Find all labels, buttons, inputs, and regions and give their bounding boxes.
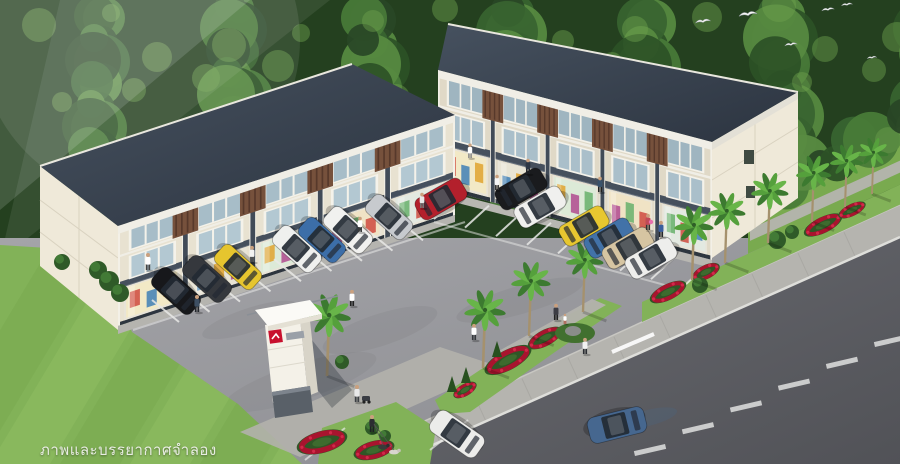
facade-detail xyxy=(360,181,362,202)
tree-canopy-highlight xyxy=(362,10,384,32)
facade-detail xyxy=(414,133,416,155)
person-legs xyxy=(197,306,199,312)
facade-detail xyxy=(525,99,527,125)
person-torso xyxy=(554,308,559,315)
facade-detail xyxy=(655,162,659,246)
facade-detail xyxy=(525,134,527,159)
stroller-wheel xyxy=(362,400,365,403)
facade-detail xyxy=(580,114,582,140)
facade-detail xyxy=(461,165,469,186)
person-legs xyxy=(659,231,661,237)
bush-highlight xyxy=(90,262,100,272)
person-legs xyxy=(565,320,566,324)
person-legs xyxy=(360,227,362,232)
palm-crown xyxy=(692,223,696,227)
person-legs xyxy=(350,300,352,306)
facade-detail xyxy=(118,225,120,326)
person-head xyxy=(358,217,362,221)
person-shadow xyxy=(250,262,258,264)
person-legs xyxy=(357,396,359,402)
person-legs xyxy=(583,348,585,354)
person-shadow xyxy=(583,354,591,356)
facade-detail xyxy=(624,160,626,185)
person-legs xyxy=(648,224,650,230)
person-torso xyxy=(354,389,359,397)
person-head xyxy=(659,221,663,225)
person-torso xyxy=(468,147,472,153)
facade-detail xyxy=(514,97,516,123)
facade-detail xyxy=(470,120,472,145)
bush-highlight xyxy=(112,285,122,295)
facade-detail xyxy=(679,175,681,200)
person-head xyxy=(350,290,354,294)
person-shadow xyxy=(358,232,365,234)
person-head xyxy=(554,304,558,308)
bush-highlight xyxy=(101,272,112,283)
person-legs xyxy=(646,224,648,230)
facade-detail xyxy=(293,203,295,224)
facade-detail xyxy=(580,149,582,174)
person-legs xyxy=(497,185,499,190)
facade-detail xyxy=(690,143,692,169)
bush-highlight xyxy=(786,226,794,234)
person-legs xyxy=(470,153,472,158)
tree-canopy-highlight xyxy=(812,36,838,62)
person-legs xyxy=(355,396,357,402)
person-legs xyxy=(556,314,558,320)
facade-detail xyxy=(427,158,429,179)
person-torso xyxy=(194,299,199,307)
person-shadow xyxy=(468,158,475,160)
facade-detail xyxy=(360,151,362,173)
person-head xyxy=(472,324,476,328)
person-torso xyxy=(358,220,363,227)
facade-detail xyxy=(225,196,227,218)
person-torso xyxy=(583,342,588,349)
facade-detail xyxy=(569,146,571,171)
facade-detail xyxy=(158,218,160,240)
person-legs xyxy=(252,256,254,262)
landscape-rock xyxy=(565,326,581,336)
palm-crown xyxy=(812,171,816,175)
bush-highlight xyxy=(769,232,779,242)
person-head xyxy=(468,144,471,147)
person-shadow xyxy=(564,324,569,326)
person-legs xyxy=(422,203,424,208)
person-head xyxy=(646,214,650,218)
tree-canopy-highlight xyxy=(692,2,722,32)
person-shadow xyxy=(355,402,363,405)
person-shadow xyxy=(350,306,358,308)
person-shadow xyxy=(495,190,502,192)
person-head xyxy=(495,175,499,179)
facade-detail xyxy=(635,128,637,154)
facade-detail xyxy=(293,173,295,195)
facade-detail xyxy=(475,162,483,183)
palm-crown xyxy=(725,209,729,213)
facade-detail xyxy=(624,125,626,151)
tree-canopy-highlight xyxy=(622,16,648,42)
facade-detail xyxy=(158,247,160,268)
facade-detail xyxy=(212,229,214,250)
facade-detail xyxy=(679,140,681,166)
person-shadow xyxy=(659,237,667,239)
person-torso xyxy=(420,196,425,203)
sign-logo xyxy=(268,329,283,344)
person-head xyxy=(250,246,254,250)
facade-detail xyxy=(279,178,281,200)
facade-detail xyxy=(460,117,462,142)
person-legs xyxy=(148,264,150,270)
person-legs xyxy=(495,185,497,190)
facade-detail xyxy=(225,225,227,246)
person-head xyxy=(146,253,150,257)
person-torso xyxy=(369,419,374,427)
person-shadow xyxy=(146,270,154,273)
person-head xyxy=(526,159,530,163)
person-legs xyxy=(372,426,374,432)
facade-detail xyxy=(635,163,637,188)
person-torso xyxy=(495,178,500,185)
person-head xyxy=(370,415,374,419)
person-legs xyxy=(474,334,476,340)
person-legs xyxy=(358,227,360,232)
person-head xyxy=(564,314,566,316)
person-head xyxy=(583,338,587,342)
person-torso xyxy=(250,250,255,257)
palm-crown xyxy=(768,189,772,193)
facade-detail xyxy=(427,129,429,151)
person-torso xyxy=(145,257,150,265)
person-legs xyxy=(564,320,565,324)
caption-text: ภาพและบรรยากาศจำลอง xyxy=(40,438,217,462)
person-legs xyxy=(661,231,663,237)
tree-canopy-highlight xyxy=(862,58,886,82)
person-shadow xyxy=(195,312,203,315)
person-legs xyxy=(195,306,197,312)
person-shadow xyxy=(554,320,562,322)
person-torso xyxy=(350,294,355,301)
person-shadow xyxy=(420,208,427,210)
person-legs xyxy=(420,203,422,208)
person-legs xyxy=(598,187,600,192)
facade-detail xyxy=(145,222,147,244)
rendering-canvas: ภาพและบรรยากาศจำลอง xyxy=(0,0,900,464)
person-legs xyxy=(370,426,372,432)
facade-detail xyxy=(414,163,416,184)
person-head xyxy=(195,295,199,299)
facade-detail xyxy=(263,241,270,273)
tree-canopy-highlight xyxy=(792,72,812,92)
facade-detail xyxy=(514,131,516,156)
facade-detail xyxy=(147,288,157,307)
facade-detail xyxy=(571,193,579,214)
person-shadow xyxy=(472,340,480,342)
facade-detail xyxy=(347,185,349,206)
person-legs xyxy=(600,187,602,192)
palm-crown xyxy=(483,308,487,312)
person-legs xyxy=(468,153,470,158)
person-shadow xyxy=(646,230,654,232)
person-shadow xyxy=(526,174,533,176)
facade-detail xyxy=(212,200,214,222)
stroller xyxy=(362,396,370,401)
facade-detail xyxy=(569,111,571,137)
person-shadow xyxy=(370,432,378,435)
person-legs xyxy=(146,264,148,270)
pink-bag xyxy=(649,220,653,224)
facade-detail xyxy=(128,285,135,317)
person-legs xyxy=(472,334,474,340)
palm-crown xyxy=(872,151,875,154)
person-legs xyxy=(526,169,528,174)
person-shadow xyxy=(598,192,605,194)
person-torso xyxy=(526,162,531,169)
facade-detail xyxy=(347,155,349,177)
facade-detail xyxy=(491,119,495,203)
person-legs xyxy=(250,256,252,262)
person-legs xyxy=(352,300,354,306)
person-head xyxy=(355,385,359,389)
end-wall-window xyxy=(744,150,754,164)
bush-highlight xyxy=(55,255,64,264)
person-torso xyxy=(563,316,566,321)
person-head xyxy=(598,177,602,181)
palm-crown xyxy=(583,258,587,262)
bush-highlight xyxy=(336,356,344,364)
facade-detail xyxy=(460,82,462,108)
stroller-wheel xyxy=(367,400,370,403)
facade-detail xyxy=(690,177,692,202)
person-torso xyxy=(472,328,477,335)
palm-crown xyxy=(529,279,533,283)
scene-svg xyxy=(0,0,900,464)
person-torso xyxy=(659,225,664,232)
dog-head xyxy=(397,449,401,453)
person-legs xyxy=(554,314,556,320)
palm-crown xyxy=(327,313,332,318)
person-head xyxy=(420,193,424,197)
facade-detail xyxy=(470,85,472,111)
person-legs xyxy=(528,169,530,174)
person-legs xyxy=(585,348,587,354)
palm-crown xyxy=(845,159,849,163)
person-torso xyxy=(598,180,603,187)
